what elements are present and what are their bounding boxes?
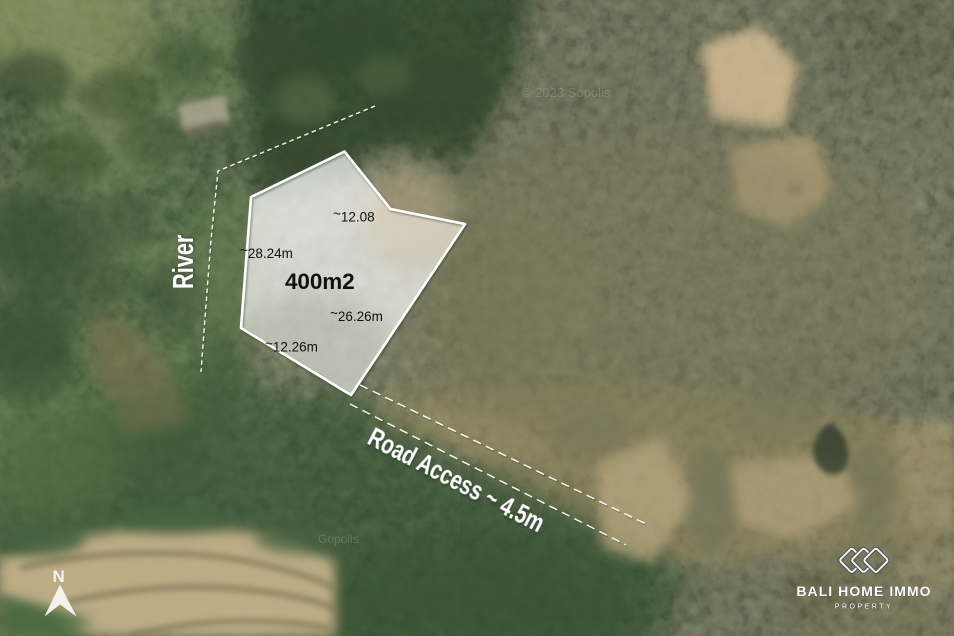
svg-text:BALI HOME IMMO: BALI HOME IMMO [796, 583, 931, 599]
svg-text:Gopolis: Gopolis [318, 532, 359, 546]
svg-text:~28.24m: ~28.24m [240, 243, 293, 261]
svg-text:~26.26m: ~26.26m [330, 306, 383, 324]
svg-text:400m2: 400m2 [285, 269, 355, 294]
svg-text:~12.26m: ~12.26m [265, 337, 318, 355]
svg-text:River: River [168, 235, 200, 289]
svg-text:PROPERTY: PROPERTY [835, 604, 893, 611]
svg-text:N: N [53, 567, 65, 586]
svg-text:© 2023 Sopolis: © 2023 Sopolis [522, 85, 611, 100]
